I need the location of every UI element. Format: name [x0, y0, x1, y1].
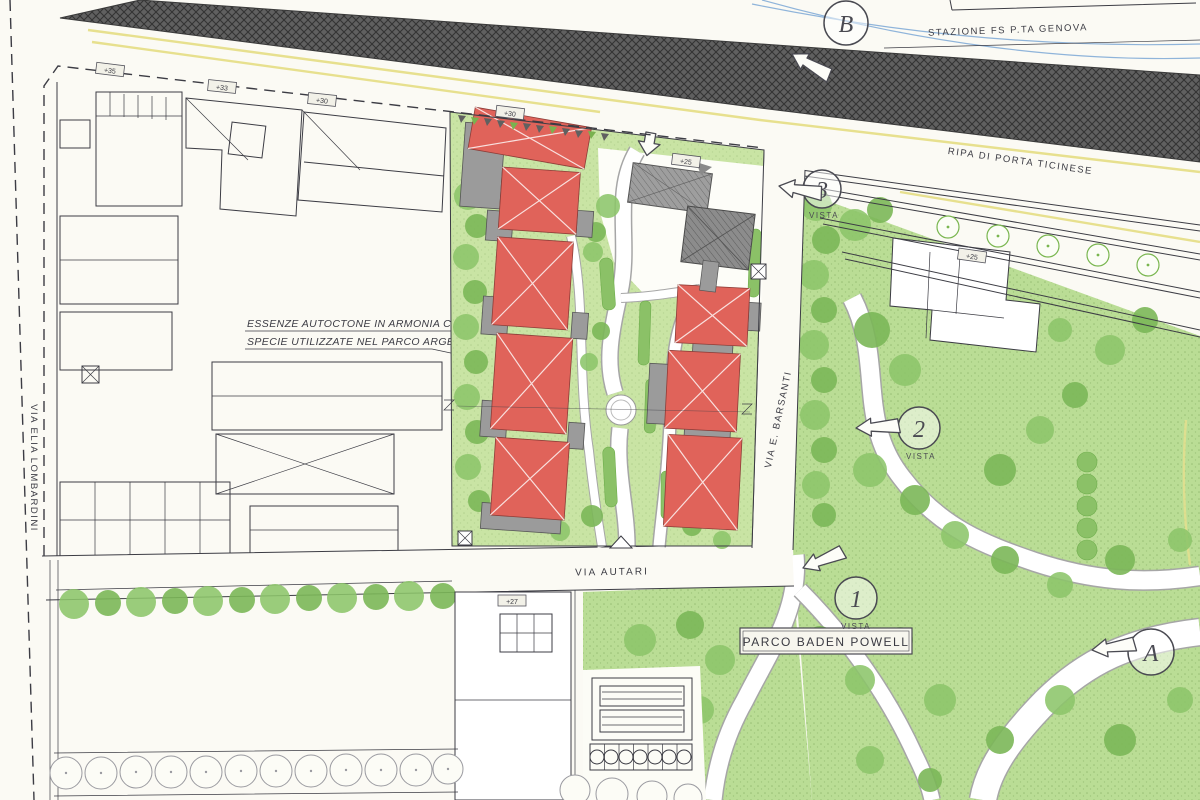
development-site — [437, 107, 766, 549]
annotation-line2: SPECIE UTILIZZATE NEL PARCO ARGELATI — [247, 336, 477, 348]
svg-text:+33: +33 — [216, 84, 229, 92]
view-marker-A-label: A — [1142, 641, 1159, 667]
view-marker-2-caption: VISTA — [906, 452, 936, 461]
view-marker-3-caption: VISTA — [809, 211, 839, 220]
svg-text:+35: +35 — [103, 67, 116, 75]
via-lombardini-label: VIA ELIA LOMBARDINI — [28, 404, 39, 532]
bottom-building — [455, 590, 575, 800]
annotation-line1: ESSENZE AUTOCTONE IN ARMONIA CON LE — [247, 318, 485, 330]
svg-text:+30: +30 — [316, 97, 329, 105]
site-plan-sheet: ESSENZE AUTOCTONE IN ARMONIA CON LE SPEC… — [0, 0, 1200, 800]
view-marker-B-label: B — [839, 12, 854, 38]
elevation-marker: +30 — [308, 93, 337, 107]
parco-label: PARCO BADEN POWELL — [743, 635, 910, 649]
view-marker-2-label: 2 — [913, 417, 925, 443]
elevation-marker: +27 — [498, 595, 526, 606]
svg-text:+27: +27 — [506, 599, 518, 606]
svg-text:+30: +30 — [503, 110, 516, 118]
map-canvas: ESSENZE AUTOCTONE IN ARMONIA CON LE SPEC… — [0, 0, 1200, 800]
park-hedge-row — [1077, 452, 1097, 560]
via-autari-label: VIA AUTARI — [575, 566, 649, 578]
svg-text:+25: +25 — [679, 158, 692, 166]
elevation-marker: +33 — [208, 80, 237, 94]
view-marker-1-label: 1 — [850, 587, 862, 613]
parco-label-box: PARCO BADEN POWELL — [740, 628, 912, 654]
garden-plots — [583, 666, 706, 800]
view-marker-1-caption: VISTA — [841, 622, 871, 631]
